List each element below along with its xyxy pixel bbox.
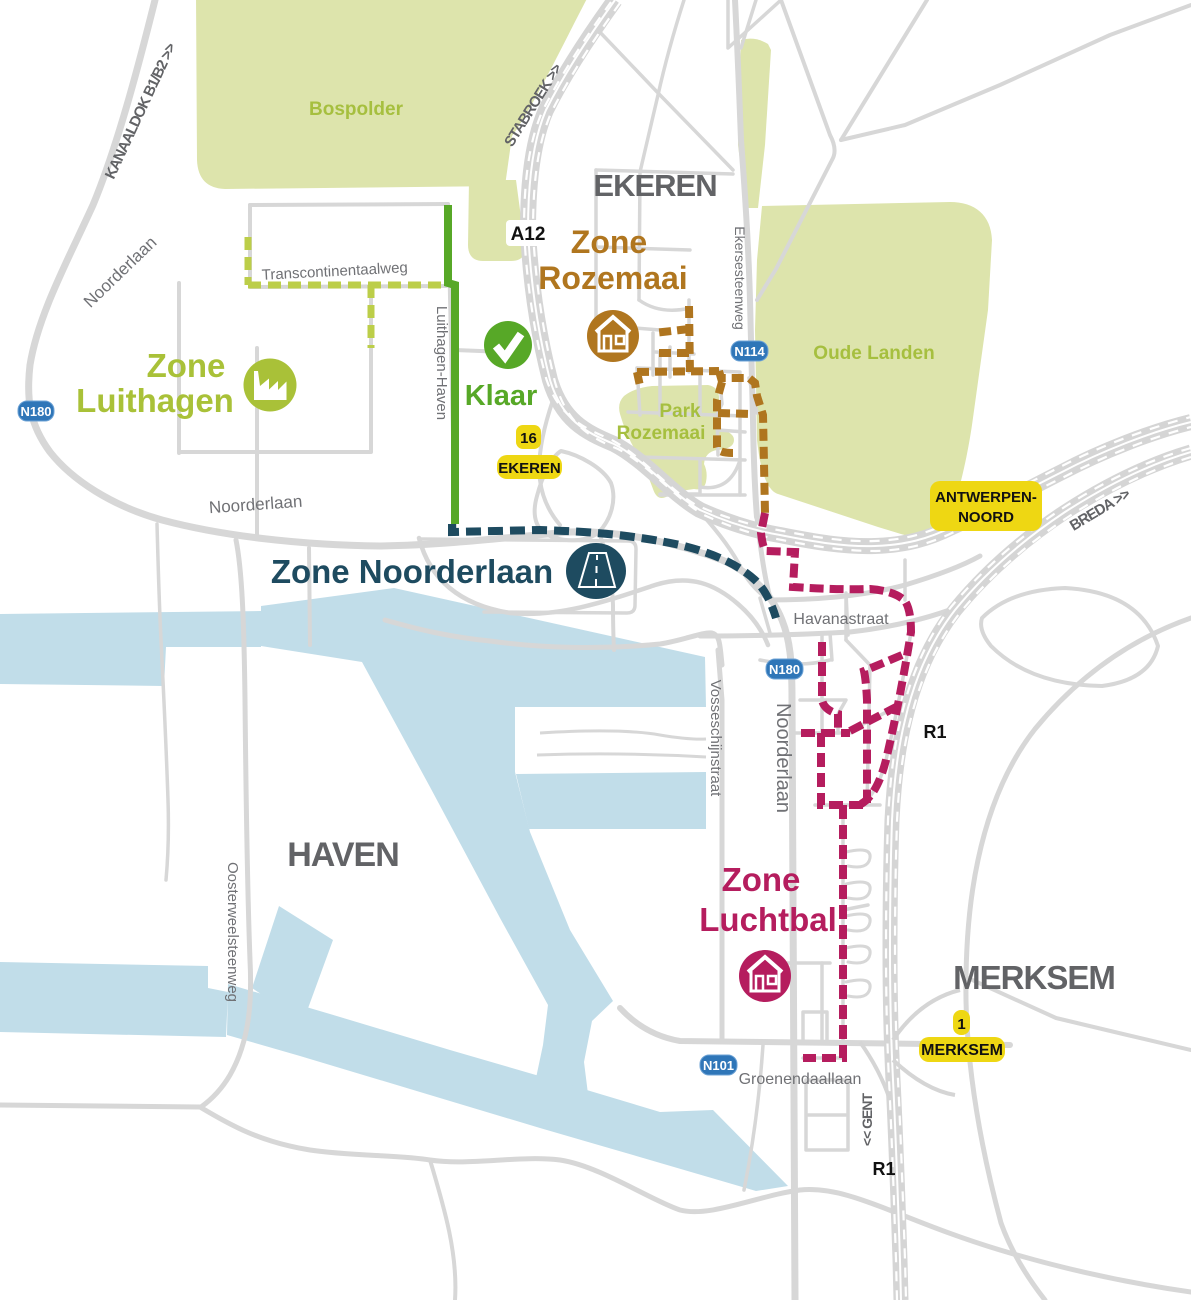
svg-text:Luithagen: Luithagen	[76, 382, 234, 419]
svg-text:N114: N114	[734, 344, 765, 359]
svg-text:NOORD: NOORD	[958, 509, 1014, 526]
svg-text:EKEREN: EKEREN	[498, 460, 561, 477]
svg-text:Rozemaai: Rozemaai	[538, 260, 687, 296]
svg-text:Oude Landen: Oude Landen	[813, 343, 934, 364]
svg-text:Havanastraat: Havanastraat	[793, 611, 889, 628]
svg-text:<< GENT: << GENT	[859, 1092, 875, 1146]
svg-text:EKEREN: EKEREN	[593, 168, 716, 203]
svg-text:Klaar: Klaar	[465, 380, 538, 412]
svg-text:Zone: Zone	[571, 224, 647, 260]
svg-text:N180: N180	[769, 662, 800, 677]
svg-text:R1: R1	[923, 722, 946, 742]
svg-text:Zone: Zone	[147, 347, 226, 384]
svg-text:MERKSEM: MERKSEM	[953, 959, 1115, 996]
svg-text:Oosterweelsteenweg: Oosterweelsteenweg	[224, 862, 241, 1002]
svg-text:Luchtbal: Luchtbal	[699, 901, 837, 938]
svg-text:Noorderlaan: Noorderlaan	[772, 703, 794, 813]
svg-text:R1: R1	[872, 1159, 895, 1179]
svg-text:16: 16	[520, 430, 537, 447]
svg-text:Zone Noorderlaan: Zone Noorderlaan	[271, 553, 553, 590]
svg-text:Vosseschijnstraat: Vosseschijnstraat	[707, 680, 724, 798]
svg-text:A12: A12	[511, 224, 546, 245]
svg-text:Zone: Zone	[722, 861, 801, 898]
svg-text:Park: Park	[659, 401, 701, 422]
svg-text:MERKSEM: MERKSEM	[921, 1042, 1003, 1059]
svg-text:ANTWERPEN-: ANTWERPEN-	[935, 489, 1037, 506]
svg-text:HAVEN: HAVEN	[287, 836, 399, 874]
svg-text:N101: N101	[703, 1058, 734, 1073]
svg-text:Luithagen-Haven: Luithagen-Haven	[433, 306, 450, 420]
svg-text:Rozemaai: Rozemaai	[617, 423, 706, 444]
svg-text:N180: N180	[20, 404, 51, 419]
svg-text:Bospolder: Bospolder	[309, 99, 404, 120]
svg-text:Groenendaallaan: Groenendaallaan	[739, 1071, 862, 1088]
svg-text:Ekersesteenweg: Ekersesteenweg	[732, 226, 748, 330]
svg-text:1: 1	[957, 1016, 965, 1033]
